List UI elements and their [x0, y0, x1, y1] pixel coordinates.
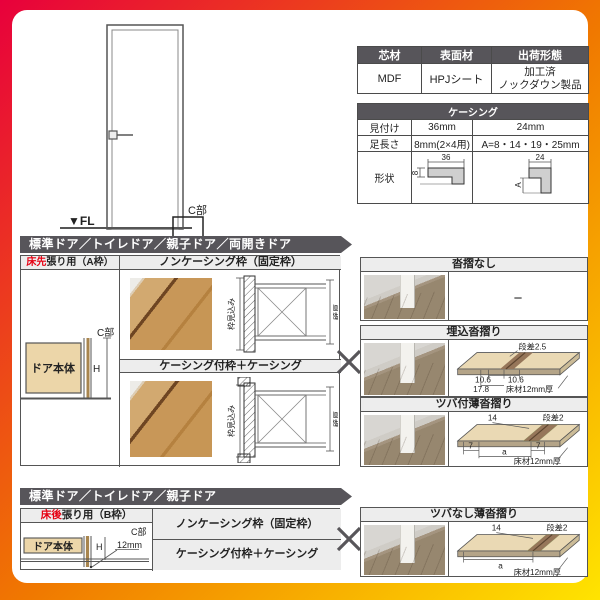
material-spec-table: 芯材 表面材 出荷形態 MDF HPJシート 加工済 ノックダウン製品	[357, 46, 589, 94]
section-a-door-diagram: C部 H ドア本体	[21, 270, 119, 467]
frame-cross-section-1: 枠見込み 壁厚	[226, 272, 338, 356]
sill-tsubanashi-title: ツバなし薄沓摺り	[361, 508, 587, 522]
frame-cross-section-2: 枠見込み 壁厚	[226, 377, 338, 463]
section-b-left-header: 床後張り用（B枠）	[21, 509, 152, 523]
casing-shape-8-dim: 8	[412, 170, 420, 175]
tsubatsuki-d2: a	[502, 447, 507, 456]
tsubanashi-floor-label: 床材12mm厚	[514, 567, 561, 576]
tsubatsuki-step-label: 段差2	[543, 413, 564, 423]
tsubanashi-d2: a	[498, 561, 503, 570]
sill-none-table: 沓摺なし −	[360, 257, 588, 321]
spec-header-shipping: 出荷形態	[492, 47, 589, 64]
casing-shape-24-dim: 24	[535, 153, 544, 162]
casing-table: ケーシング 見付け 36mm 24mm 足長さ 8mm(2×4用) A=8・14…	[357, 103, 589, 204]
sill-umekomi-photo	[364, 343, 445, 395]
a-c-label: C部	[97, 326, 114, 339]
tsubanashi-step-label: 段差2	[546, 523, 567, 533]
sill-tsubatsuki-table: ツバ付薄沓摺り 14 段差2 7 a 7 床材12mm厚	[360, 397, 588, 467]
casing-shape-24-cell: 24 A	[473, 152, 589, 204]
casing-mitsuke-36: 36mm	[412, 120, 473, 136]
sill-tsubatsuki-photo	[364, 415, 445, 465]
floor-after-label: 床後	[41, 509, 62, 521]
door-corner-photo-2	[130, 381, 212, 457]
sill-umekomi-table: 埋込沓摺り 段差2.5 10.6 10.6 17.8 床材12mm厚	[360, 325, 588, 397]
sill-tsubanashi-table: ツバなし薄沓摺り 14 段差2 a 床材12mm厚	[360, 507, 588, 577]
casing-shape-a-dim: A	[514, 182, 523, 188]
spec-core-value: MDF	[358, 64, 422, 94]
tsubatsuki-top-dim: 14	[488, 414, 498, 423]
section-b-table: 床後張り用（B枠） C部 H ドア本体 12mm ノンケーシング枠（固定枠） ケ…	[20, 508, 340, 570]
floor-first-rest: 張り用（A枠）	[46, 257, 113, 268]
sill-umekomi-diagram: 段差2.5 10.6 10.6 17.8 床材12mm厚	[449, 340, 587, 396]
b-c-label: C部	[131, 526, 147, 537]
door-corner-photo-1	[130, 278, 212, 350]
section-b-door-diagram: C部 H ドア本体 12mm	[21, 523, 152, 571]
spec-header-surface: 表面材	[422, 47, 492, 64]
sill-tsubatsuki-title: ツバ付薄沓摺り	[361, 398, 587, 412]
frame-depth-label-1: 枠見込み	[226, 298, 236, 330]
section-a-frame2-header: ケーシング付枠＋ケーシング	[120, 359, 341, 373]
tsubatsuki-floor-label: 床材12mm厚	[514, 456, 561, 466]
sill-none-photo	[364, 275, 445, 319]
wall-thickness-label-2: 壁厚	[332, 411, 338, 427]
b-door-body-label: ドア本体	[33, 540, 74, 553]
casing-profile-36-diagram: 36 8	[412, 153, 472, 199]
banner-door-types-1: 標準ドア／トイレドア／親子ドア／両開きドア	[20, 236, 352, 253]
section-a-left-header: 床先張り用（A枠）	[21, 256, 119, 270]
tsubatsuki-d3: 7	[536, 442, 541, 451]
b-depth-label: 12mm	[117, 540, 142, 550]
spec-shipping-line2: ノックダウン製品	[492, 79, 588, 92]
section-b-frame1-header: ノンケーシング枠（固定枠）	[153, 509, 341, 540]
casing-row-mitsuke: 見付け	[358, 120, 412, 136]
c-detail-label: C部	[188, 203, 207, 217]
casing-shape-36-cell: 36 8	[412, 152, 473, 204]
section-a-frame1-header: ノンケーシング枠（固定枠）	[120, 256, 341, 270]
floor-first-label: 床先	[26, 257, 46, 268]
casing-ashinagasa-36: 8mm(2×4用)	[412, 136, 473, 152]
sill-tsubatsuki-diagram: 14 段差2 7 a 7 床材12mm厚	[449, 412, 587, 466]
section-a-table: 床先張り用（A枠） C部 H ドア本体 ノンケーシング枠（固定枠）	[20, 255, 340, 466]
tsubanashi-top-dim: 14	[492, 524, 502, 533]
content-area: ▼FL C部 芯材 表面材 出荷形態 MDF HPJシート 加工済 ノックダウン…	[12, 10, 588, 583]
frame-depth-label-2: 枠見込み	[226, 405, 236, 437]
casing-ashinagasa-24: A=8・14・19・25mm	[473, 136, 589, 152]
b-h-label: H	[96, 542, 103, 552]
umekomi-w2-label: 10.6	[508, 375, 524, 384]
section-a-frame1-content: 枠見込み 壁厚	[120, 270, 341, 359]
casing-row-shape: 形状	[358, 152, 412, 204]
umekomi-step-label: 段差2.5	[518, 342, 546, 352]
tsubatsuki-d1: 7	[468, 442, 473, 451]
spec-shipping-value: 加工済 ノックダウン製品	[492, 64, 589, 94]
casing-title: ケーシング	[358, 104, 589, 120]
door-handle-icon	[109, 131, 117, 139]
wall-thickness-label-1: 壁厚	[332, 304, 338, 320]
a-h-label: H	[93, 364, 100, 375]
floor-after-rest: 張り用（B枠）	[62, 509, 133, 521]
banner-door-types-2: 標準ドア／トイレドア／親子ドア	[20, 488, 352, 505]
sill-none-value: −	[449, 290, 587, 307]
casing-profile-24-diagram: 24 A	[503, 153, 559, 199]
door-elevation-diagram: ▼FL C部	[52, 18, 222, 250]
umekomi-floor-label: 床材12mm厚	[506, 384, 553, 394]
a-door-body-label: ドア本体	[31, 361, 76, 375]
floor-level-label: ▼FL	[68, 214, 95, 228]
section-b-frame2-header: ケーシング付枠＋ケーシング	[153, 540, 341, 570]
spec-shipping-line1: 加工済	[492, 66, 588, 79]
casing-mitsuke-24: 24mm	[473, 120, 589, 136]
spec-header-core: 芯材	[358, 47, 422, 64]
sill-none-title: 沓摺なし	[361, 258, 587, 272]
sill-umekomi-title: 埋込沓摺り	[361, 326, 587, 340]
umekomi-w3-label: 17.8	[473, 385, 489, 394]
umekomi-w1-label: 10.6	[475, 375, 491, 384]
casing-row-ashinagasa: 足長さ	[358, 136, 412, 152]
spec-surface-value: HPJシート	[422, 64, 492, 94]
sill-tsubanashi-diagram: 14 段差2 a 床材12mm厚	[449, 522, 587, 576]
casing-shape-36-dim: 36	[442, 153, 451, 162]
section-a-frame2-content: 枠見込み 壁厚	[120, 373, 341, 467]
sill-tsubanashi-photo	[364, 525, 445, 575]
page-background: ▼FL C部 芯材 表面材 出荷形態 MDF HPJシート 加工済 ノックダウン…	[0, 0, 600, 600]
